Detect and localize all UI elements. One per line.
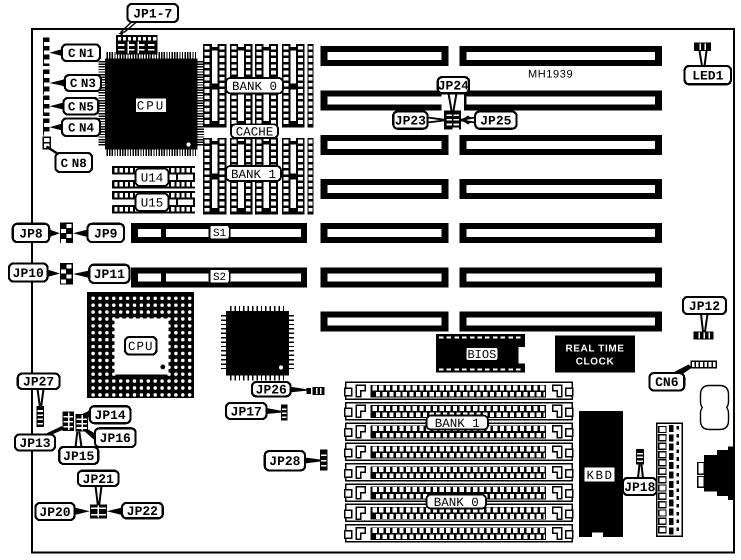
svg-text:JP13: JP13 <box>19 436 50 451</box>
svg-text:JP18: JP18 <box>624 480 655 495</box>
svg-text:CPU: CPU <box>137 100 166 114</box>
svg-text:JP28: JP28 <box>269 454 300 469</box>
svg-text:CN4: CN4 <box>68 122 95 136</box>
svg-text:S1: S1 <box>213 228 227 240</box>
svg-text:CN1: CN1 <box>68 47 94 61</box>
svg-text:JP11: JP11 <box>94 267 125 282</box>
svg-text:LED1: LED1 <box>692 69 723 84</box>
svg-text:CN3: CN3 <box>70 77 96 91</box>
svg-text:JP27: JP27 <box>23 375 54 390</box>
svg-text:BANK 1: BANK 1 <box>231 168 276 182</box>
svg-text:JP22: JP22 <box>127 504 158 519</box>
svg-text:REAL TIME: REAL TIME <box>565 344 624 355</box>
svg-text:BANK 0: BANK 0 <box>232 80 277 94</box>
svg-text:JP24: JP24 <box>438 79 469 94</box>
svg-text:JP16: JP16 <box>100 431 131 446</box>
svg-text:JP8: JP8 <box>19 226 43 241</box>
svg-text:JP9: JP9 <box>94 226 118 241</box>
svg-text:MH1939: MH1939 <box>528 69 573 81</box>
svg-text:JP26: JP26 <box>256 383 287 398</box>
svg-text:JP20: JP20 <box>39 505 70 520</box>
svg-text:JP21: JP21 <box>83 472 114 487</box>
svg-text:S2: S2 <box>213 272 226 284</box>
svg-text:JP12: JP12 <box>689 299 720 314</box>
svg-text:JP10: JP10 <box>13 266 44 281</box>
svg-text:CN8: CN8 <box>61 157 87 171</box>
svg-text:U15: U15 <box>141 197 164 211</box>
svg-text:JP14: JP14 <box>95 408 126 423</box>
svg-text:BIOS: BIOS <box>467 348 496 362</box>
svg-text:BANK 1: BANK 1 <box>435 417 480 431</box>
svg-text:JP17: JP17 <box>231 404 262 419</box>
svg-text:CLOCK: CLOCK <box>576 357 615 368</box>
svg-text:CN5: CN5 <box>68 101 94 115</box>
svg-text:CACHE: CACHE <box>236 125 274 139</box>
svg-text:JP1-7: JP1-7 <box>133 6 172 21</box>
svg-text:JP15: JP15 <box>63 449 94 464</box>
svg-text:KBD: KBD <box>586 469 613 483</box>
svg-text:U14: U14 <box>141 172 164 186</box>
svg-text:JP23: JP23 <box>395 114 426 129</box>
svg-text:CN6: CN6 <box>655 375 679 390</box>
svg-text:CPU: CPU <box>128 340 154 354</box>
svg-text:BANK 0: BANK 0 <box>434 496 479 510</box>
svg-text:JP25: JP25 <box>480 114 511 129</box>
